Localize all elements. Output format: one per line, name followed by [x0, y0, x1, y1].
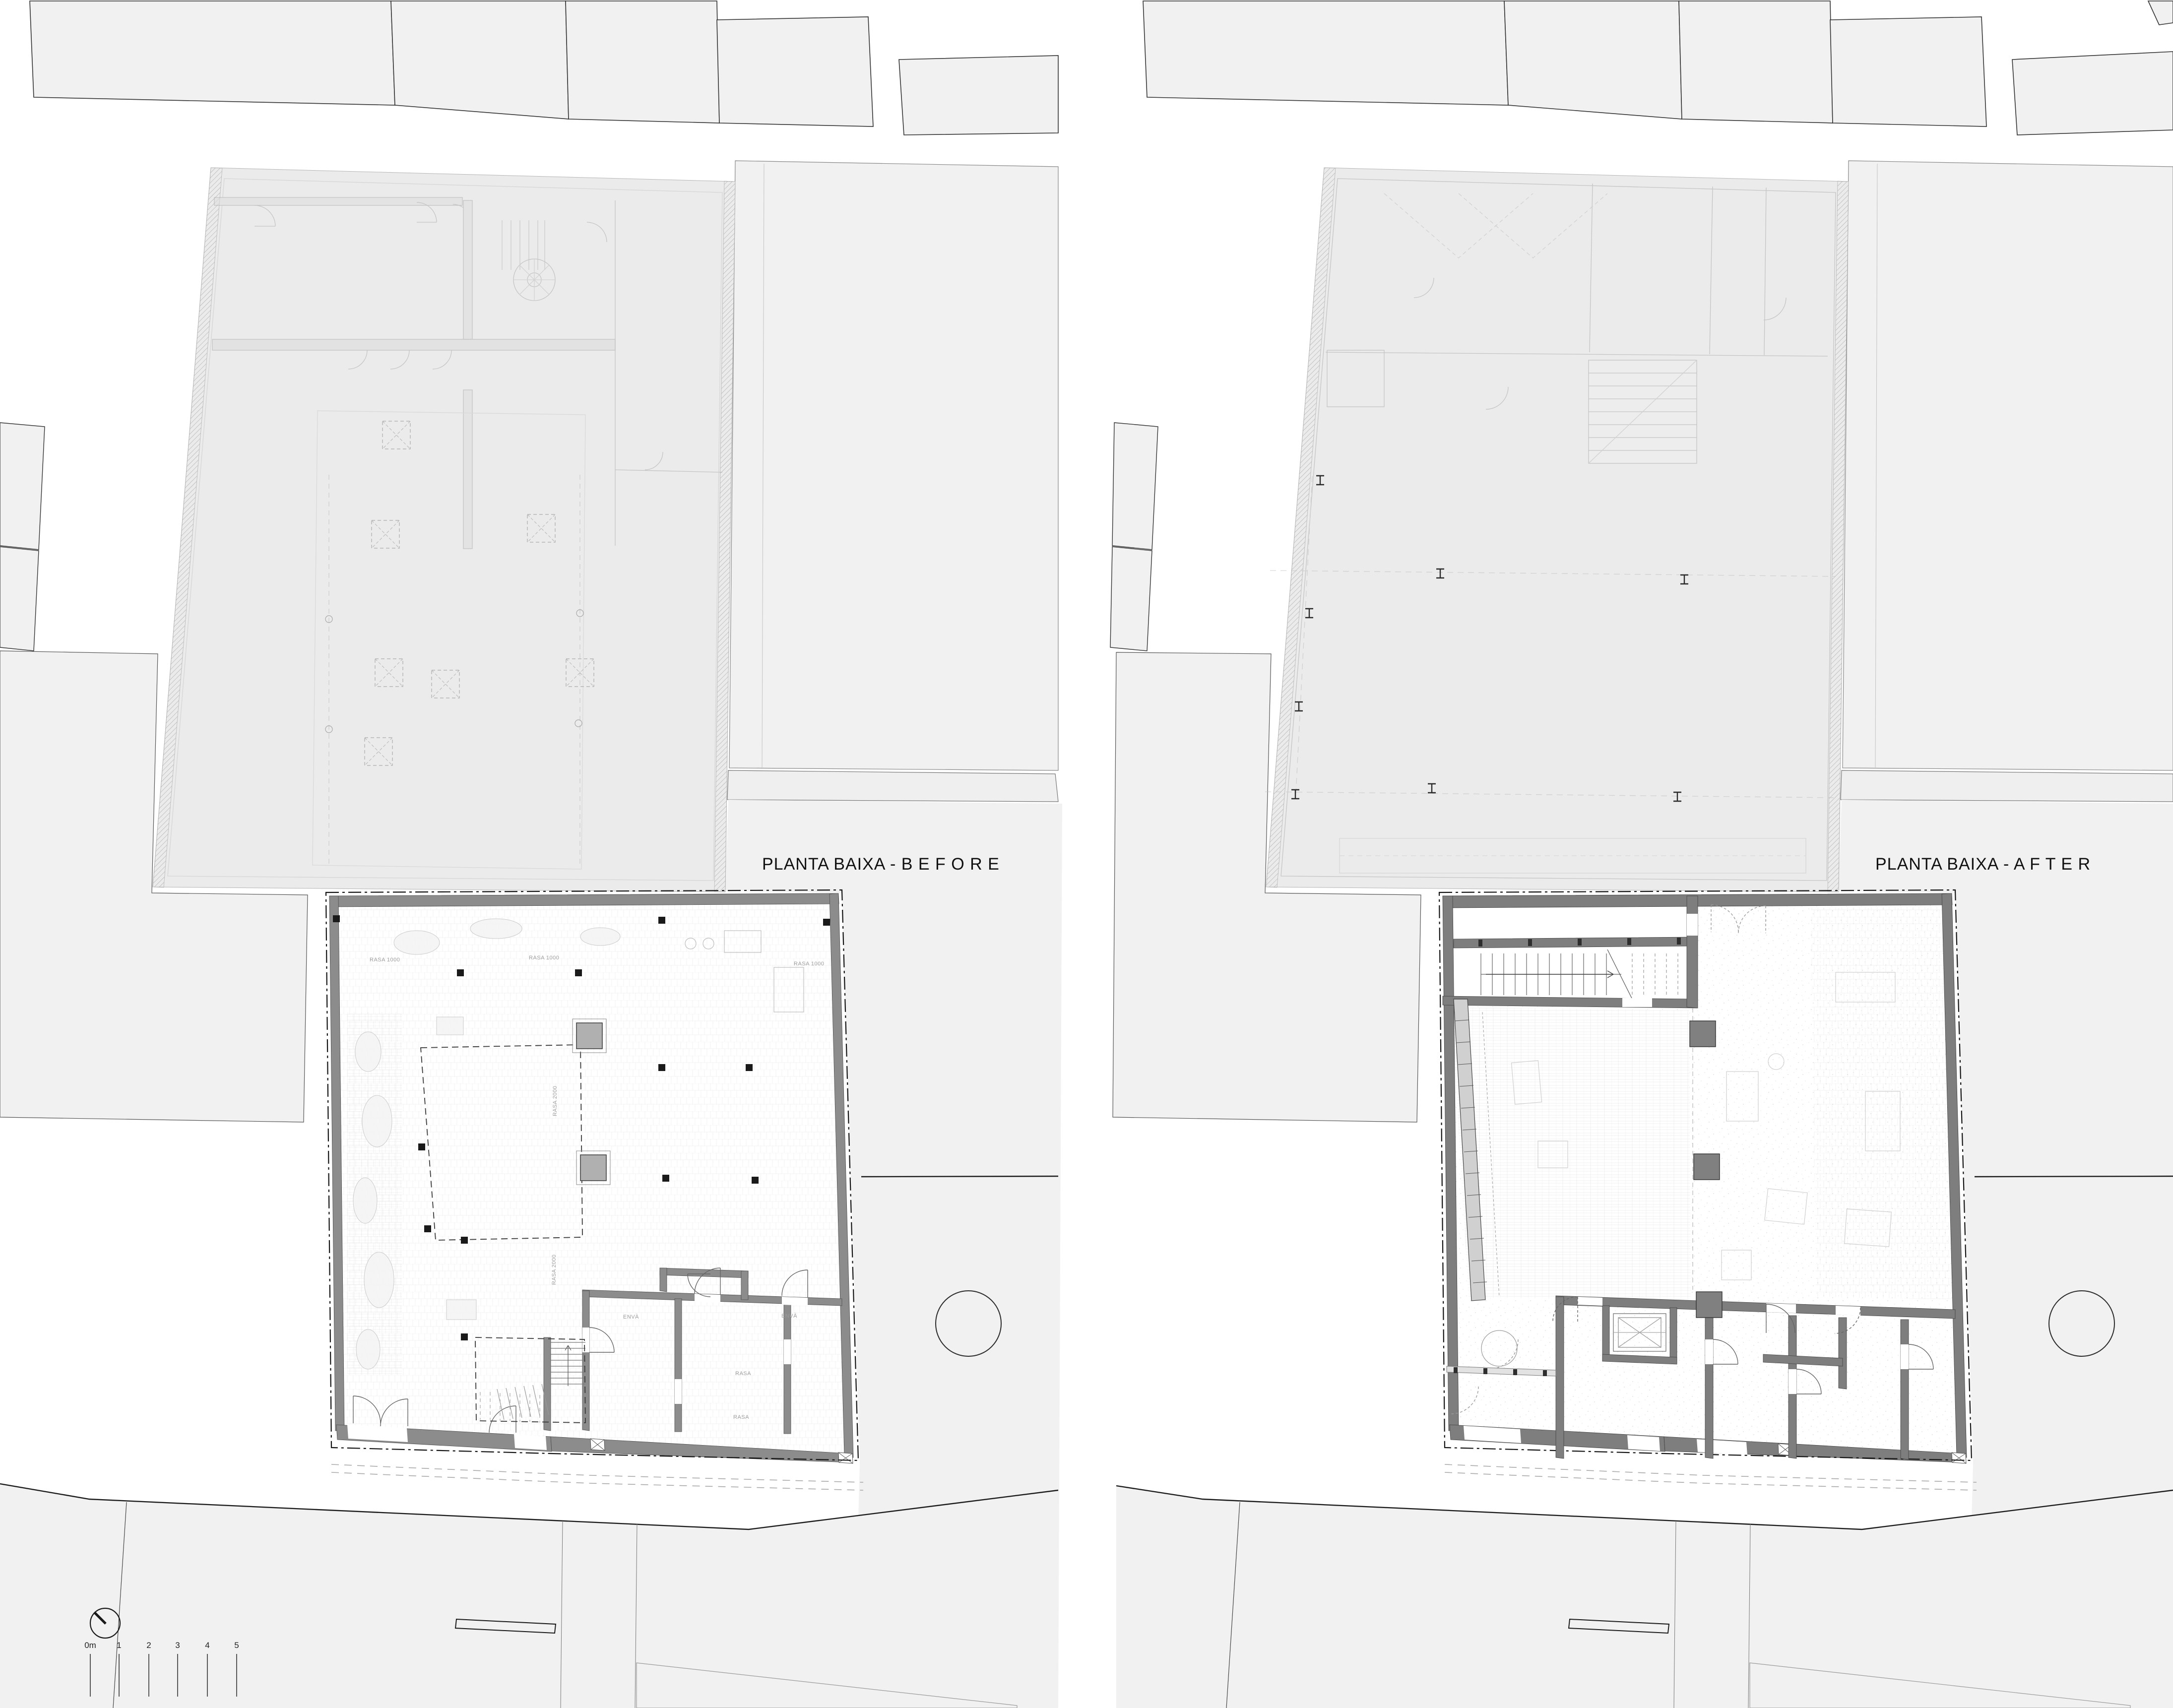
context-right-block-left: [727, 161, 1058, 802]
svg-text:3: 3: [175, 1641, 180, 1650]
svg-text:RASA 1000: RASA 1000: [529, 955, 559, 961]
context-top-band-left: [30, 1, 1058, 135]
svg-text:RASA 1000: RASA 1000: [794, 961, 824, 967]
context-bottom-right: [1116, 1486, 2173, 1708]
svg-text:2: 2: [146, 1641, 151, 1650]
svg-text:4: 4: [205, 1641, 209, 1650]
detailed-plan-after: [1439, 890, 1977, 1490]
svg-text:RASA: RASA: [735, 1371, 751, 1377]
svg-text:5: 5: [234, 1641, 239, 1650]
curb-line-left: [861, 1176, 1058, 1177]
sidewalk-before: [331, 1464, 863, 1490]
svg-text:RASA 1000: RASA 1000: [370, 957, 400, 963]
label-before: PLANTA BAIXA - B E F O R E: [762, 855, 1000, 874]
context-bottom-left: [0, 1484, 1058, 1708]
svg-text:RASA 2000: RASA 2000: [551, 1255, 557, 1285]
context-top-band-right: [1143, 1, 2173, 135]
svg-text:1: 1: [117, 1641, 121, 1650]
context-right-block-right: [1841, 161, 2173, 802]
svg-text:0m: 0m: [84, 1641, 96, 1650]
svg-text:RASA: RASA: [733, 1414, 749, 1420]
site-block-before: [153, 168, 735, 892]
context-left-shapes-right: [1110, 423, 1158, 651]
context-left-shapes-left: [0, 423, 45, 651]
svg-text:RASA 2000: RASA 2000: [552, 1086, 558, 1116]
sidewalk-after: [1445, 1464, 1977, 1490]
detailed-plan-before: RASA 1000RASA 1000RASA 1000RASA 2000RASA…: [326, 890, 863, 1490]
svg-text:ENVÀ: ENVÀ: [623, 1314, 639, 1320]
label-after: PLANTA BAIXA - A F T E R: [1875, 855, 2091, 874]
architectural-sheet: PLANTA BAIXA - B E F O R E PLANTA BAIXA …: [0, 0, 2173, 1708]
site-block-after: [1265, 168, 1849, 892]
curb-line-right: [1975, 1176, 2173, 1177]
svg-text:ENVÀ: ENVÀ: [781, 1313, 797, 1319]
